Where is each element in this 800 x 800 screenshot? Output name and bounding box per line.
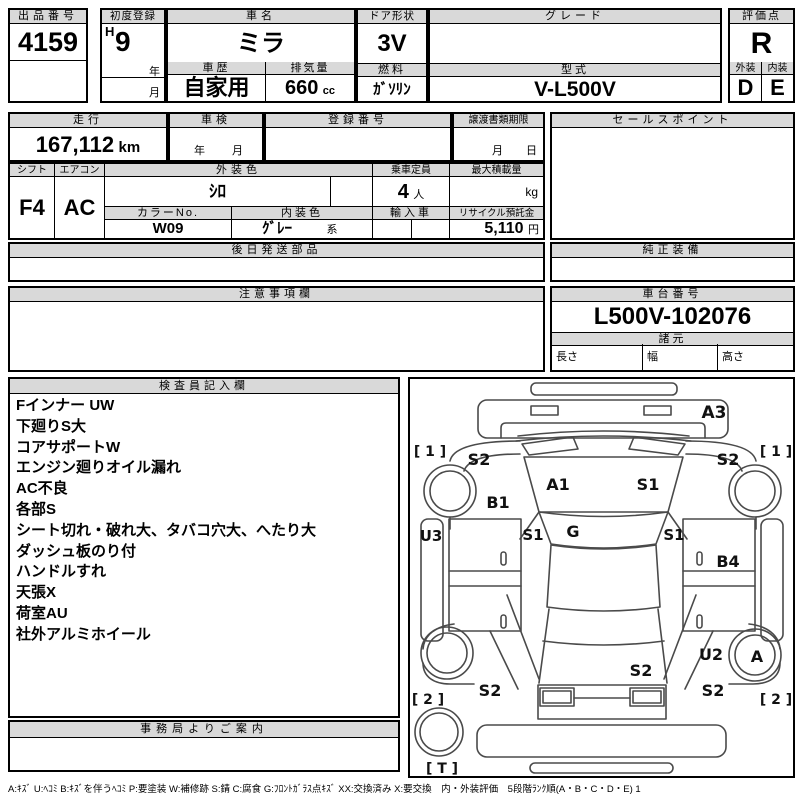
front-bumper-shape (531, 383, 677, 395)
diagram-bracket-rear-left: [ 2 ] (412, 692, 444, 708)
score-label: 評価点 (730, 10, 793, 24)
cowl-panel (539, 512, 668, 548)
genuine-equipment-label: 純正装備 (552, 244, 793, 258)
shaken-label: 車検 (170, 114, 262, 128)
registration-number-label: 登録番号 (266, 114, 450, 128)
month-suffix: 月 (149, 84, 160, 100)
interior-color-suffix: 系 (326, 224, 337, 236)
spec-width-label: 幅 (643, 344, 718, 370)
inspector-note: 下廻りS大 (16, 417, 392, 438)
recycle-deposit-cell: 5,110 円 (450, 220, 543, 238)
notice-label: 注意事項欄 (10, 288, 543, 302)
shaken-month-suffix: 月 (232, 142, 243, 158)
displacement-label: 排気量 (266, 62, 354, 75)
grade-box: グレード 型式 V-L500V (428, 8, 722, 103)
inspector-notes-box: 検査員記入欄 Fインナー UW 下廻りS大 コアサポートW エンジン廻りオイル漏… (8, 377, 400, 718)
mileage-label: 走行 (10, 114, 166, 128)
shift-label: シフト (10, 164, 55, 177)
door-left (449, 519, 521, 631)
diagram-label-a1: A1 (546, 475, 570, 494)
inspector-note: ダッシュ板のり付 (16, 542, 392, 563)
diagram-bracket-spare: [ T ] (426, 761, 458, 776)
diagram-label-s2-rear-center: S2 (630, 661, 653, 680)
c-pillar-right (664, 595, 713, 689)
fuel-value: ｶﾞｿﾘﾝ (358, 77, 426, 103)
max-load-unit: kg (525, 185, 538, 199)
later-parts-label: 後日発送部品 (10, 244, 543, 258)
recycle-deposit-unit: 円 (528, 224, 539, 236)
chassis-number-value: L500V-102076 (552, 302, 793, 333)
diagram-label-g: G (566, 522, 579, 541)
damage-diagram-box: A3 [ 1 ] [ 1 ] S2 S2 B1 A1 S1 U3 S1 G S1… (408, 377, 795, 778)
grade-value (430, 24, 720, 64)
era-code: H (105, 24, 114, 39)
spare-tire (415, 708, 463, 756)
inspector-note: 各部S (16, 500, 392, 521)
diagram-label-u2: U2 (699, 645, 723, 664)
door-right-beltline (683, 571, 755, 586)
diagram-label-s2-front-left: S2 (468, 450, 491, 469)
notice-box: 注意事項欄 (8, 286, 545, 372)
spec-length-label: 長さ (552, 344, 643, 370)
model-code-value: V-L500V (430, 77, 720, 103)
diagram-label-a-rear-wheel: A (751, 647, 764, 666)
auction-sheet: { "top": { "lot": {"label": "出品番号", "val… (0, 0, 800, 800)
aircon-label: エアコン (55, 164, 105, 177)
door-right-handle (697, 552, 702, 565)
damage-code-legend: A:ｷｽﾞ U:ﾍｺﾐ B:ｷｽﾞを伴うﾍｺﾐ P:要塗装 W:補修跡 S:錆 … (8, 781, 792, 795)
history-value: 自家用 (168, 75, 266, 101)
exterior-color-value: ｼﾛ (105, 177, 331, 207)
diagram-label-s1-windshield: S1 (637, 475, 660, 494)
color-no-value: W09 (105, 220, 232, 238)
transfer-deadline-label: 譲渡書類期限 (454, 114, 543, 128)
shaken-year-suffix: 年 (194, 142, 205, 158)
mileage-box: 走行 167,112 km (8, 112, 168, 162)
diagram-bracket-rear-right: [ 2 ] (760, 692, 792, 708)
door-shape-label: ドア形状 (358, 10, 426, 24)
mileage-value: 167,112 (36, 132, 114, 157)
lot-number-box: 出品番号 4159 (8, 8, 88, 103)
cowl-vent-right (644, 406, 671, 415)
shaken-box: 車検 年 月 (168, 112, 264, 162)
rear-bumper (477, 725, 726, 757)
front-left-wheel (424, 465, 476, 517)
fuel-label: 燃料 (358, 64, 426, 77)
door-left-beltline (449, 571, 521, 586)
diagram-label-b1: B1 (486, 493, 509, 512)
color-equipment-box: シフト F4 エアコン AC 外装色 ｼﾛ カラーNo. W09 内装色 ｸﾞﾚ… (8, 162, 545, 240)
transfer-month-suffix: 月 (492, 142, 503, 158)
exterior-color-sub-cell (331, 177, 373, 207)
diagram-label-b4: B4 (716, 552, 739, 571)
capacity-label: 乗車定員 (373, 164, 450, 177)
displacement-value: 660 cc (266, 75, 354, 101)
exterior-label: 外装 (730, 62, 762, 75)
exterior-color-label: 外装色 (105, 164, 373, 177)
door-left-handle-2 (501, 615, 506, 628)
max-load-cell: kg (450, 177, 543, 207)
sales-point-box: セールスポイント (550, 112, 795, 240)
diagram-bracket-front-right: [ 1 ] (760, 444, 792, 460)
aircon-value: AC (55, 177, 105, 238)
inspector-note: AC不良 (16, 479, 392, 500)
inspector-note: コアサポートW (16, 438, 392, 459)
office-info-label: 事務局よりご案内 (10, 722, 398, 738)
transfer-deadline-box: 譲渡書類期限 月 日 (452, 112, 545, 162)
rocker-right (761, 519, 783, 641)
color-no-label: カラーNo. (105, 207, 232, 220)
diagram-label-s2-rear-right: S2 (702, 681, 725, 700)
capacity-value: 4 (398, 181, 409, 203)
first-registration-box: 初度登録 H 9 年 月 (100, 8, 166, 103)
max-load-label: 最大積載量 (450, 164, 543, 177)
cowl-vent-left (531, 406, 558, 415)
grade-label: グレード (430, 10, 720, 24)
rear-bumper-lower (530, 763, 673, 773)
diagram-label-s1-cowl-right: S1 (663, 526, 684, 544)
interior-grade: E (762, 75, 793, 101)
capacity-cell: 4 人 (373, 177, 450, 207)
chassis-number-box: 車台番号 L500V-102076 諸元 長さ 幅 高さ (550, 286, 795, 372)
diagram-label-u3: U3 (420, 527, 443, 545)
door-left-handle (501, 552, 506, 565)
interior-color-label: 内装色 (232, 207, 373, 220)
displacement-unit: cc (323, 85, 335, 97)
door-right (683, 519, 755, 631)
car-name-box: 車名 ミラ 車歴 排気量 自家用 660 cc (166, 8, 356, 103)
c-pillar-left (490, 595, 539, 689)
displacement-number: 660 (285, 77, 318, 99)
inspector-note: ハンドルすれ (16, 562, 392, 583)
inspector-note: エンジン廻りオイル漏れ (16, 458, 392, 479)
history-label: 車歴 (168, 62, 266, 75)
diagram-bracket-front-left: [ 1 ] (414, 444, 446, 460)
first-registration-year: 9 (115, 26, 131, 58)
later-parts-box: 後日発送部品 (8, 242, 545, 282)
chassis-number-label: 車台番号 (552, 288, 793, 302)
score-box: 評価点 R 外装 内装 D E (728, 8, 795, 103)
exterior-grade: D (730, 75, 762, 101)
car-name-value: ミラ (168, 24, 354, 64)
import-car-label: 輸入車 (373, 207, 450, 220)
inspector-note: シート切れ・破れ大、タバコ穴大、へたり大 (16, 521, 392, 542)
door-shape-value: 3V (358, 24, 426, 64)
office-info-box: 事務局よりご案内 (8, 720, 400, 772)
registration-number-box: 登録番号 (264, 112, 452, 162)
roof-panel (547, 545, 660, 611)
diagram-label-s2-rear-left: S2 (479, 681, 502, 700)
interior-color-value: ｸﾞﾚｰ (232, 220, 322, 238)
diagram-label-s1-cowl-left: S1 (522, 526, 543, 544)
shift-value: F4 (10, 177, 55, 238)
door-right-handle-2 (697, 615, 702, 628)
inspector-note: 天張X (16, 583, 392, 604)
lot-number-value: 4159 (10, 24, 86, 61)
first-registration-label: 初度登録 (102, 10, 164, 24)
diagram-label-a3: A3 (702, 403, 727, 423)
lot-number-label: 出品番号 (10, 10, 86, 24)
sales-point-label: セールスポイント (552, 114, 793, 128)
hood-shape (478, 400, 728, 438)
inspector-note: 社外アルミホイール (16, 625, 392, 646)
inspector-notes-label: 検査員記入欄 (10, 379, 398, 394)
mileage-unit: km (119, 139, 141, 156)
model-code-label: 型式 (430, 64, 720, 77)
inspector-note: 荷室AU (16, 604, 392, 625)
diagram-label-s2-front-right: S2 (717, 450, 740, 469)
interior-color-cell: ｸﾞﾚｰ 系 (232, 220, 373, 238)
recycle-deposit-value: 5,110 (484, 220, 523, 237)
import-car-cell (373, 220, 450, 238)
inspector-note: Fインナー UW (16, 396, 392, 417)
interior-label: 内装 (762, 62, 793, 75)
genuine-equipment-box: 純正装備 (550, 242, 795, 282)
rear-left-wheel (421, 627, 473, 679)
car-damage-diagram: A3 [ 1 ] [ 1 ] S2 S2 B1 A1 S1 U3 S1 G S1… (410, 379, 793, 776)
car-name-label: 車名 (168, 10, 354, 24)
door-shape-box: ドア形状 3V 燃料 ｶﾞｿﾘﾝ (356, 8, 428, 103)
recycle-deposit-label: リサイクル預託金 (450, 207, 543, 220)
front-right-wheel (729, 465, 781, 517)
capacity-unit: 人 (413, 189, 424, 201)
transfer-day-suffix: 日 (526, 142, 537, 158)
score-value: R (730, 24, 793, 64)
tailgate (538, 685, 666, 719)
spec-height-label: 高さ (718, 344, 793, 370)
